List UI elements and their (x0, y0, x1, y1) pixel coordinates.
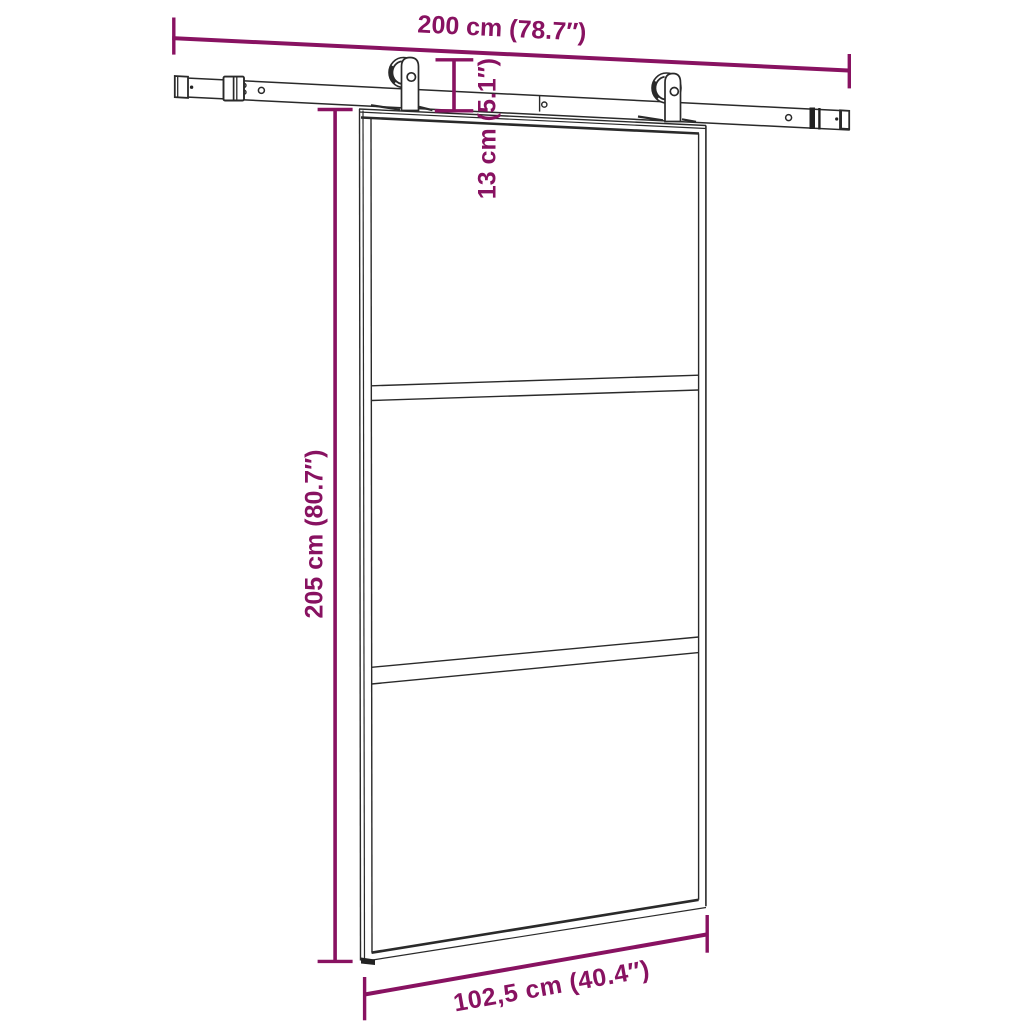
svg-text:13 cm (5.1″): 13 cm (5.1″) (474, 58, 502, 199)
svg-text:205 cm (80.7″): 205 cm (80.7″) (300, 449, 328, 618)
